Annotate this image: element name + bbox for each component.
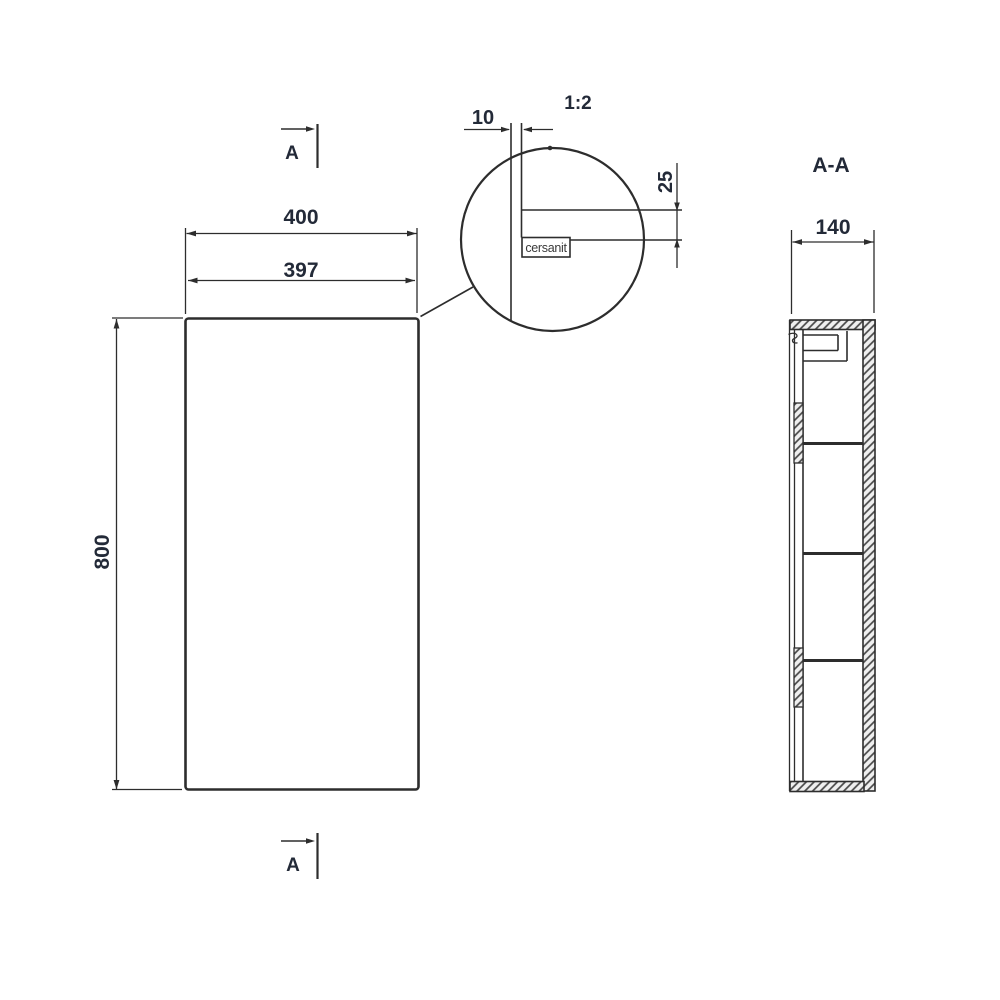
section-view-label: A-A (812, 154, 849, 177)
dim-397-text: 397 (283, 259, 318, 282)
width-dimensions: 400 397 (186, 206, 418, 314)
drawing-canvas: A A 400 397 80 (0, 0, 1000, 1000)
depth-dimension: 140 (792, 216, 875, 314)
dim-10-text: 10 (472, 107, 494, 129)
section-marker-bottom: A (281, 833, 318, 879)
detail-leader-line (421, 287, 474, 317)
front-door-section (863, 320, 875, 791)
section-arrowhead-bottom (306, 838, 315, 843)
dim-800-arrow-bottom (114, 780, 120, 790)
detail-scale-label: 1:2 (564, 93, 591, 114)
dim-400-arrow-right (407, 231, 417, 237)
bottom-panel-section (790, 782, 864, 792)
dim-397-arrow-right (406, 278, 416, 284)
front-view: A A 400 397 80 (91, 124, 473, 879)
section-marker-top-label: A (285, 143, 299, 164)
hanging-bracket (789, 331, 848, 361)
section-arrowhead-top (306, 126, 315, 131)
brand-logo: cersanit (522, 238, 570, 258)
wall-rail-section-upper (794, 403, 803, 463)
dim-10-arrow-left (501, 127, 510, 132)
section-view: A-A 140 (789, 154, 876, 792)
section-marker-top: A (281, 124, 318, 168)
dim-800-text: 800 (91, 534, 114, 569)
dim-140-arrow-right (864, 239, 874, 245)
dim-800-arrow-top (114, 319, 120, 329)
dim-10-arrow-right (523, 127, 532, 132)
detail-offset-dimension: 25 (655, 163, 680, 268)
cabinet-front-outline (186, 319, 419, 790)
detail-gap-dimension: 10 (464, 107, 553, 132)
dim-400-arrow-left (187, 231, 197, 237)
logo-text: cersanit (525, 241, 567, 255)
technical-drawing: A A 400 397 80 (0, 0, 1000, 1000)
dim-400-text: 400 (283, 206, 318, 229)
wall-rail-section-lower (794, 648, 803, 707)
section-marker-bottom-label: A (286, 855, 300, 876)
dim-25-text: 25 (655, 171, 677, 193)
detail-view: 1:2 10 25 cersanit (461, 93, 682, 331)
dim-140-text: 140 (815, 216, 850, 239)
height-dimension: 800 (91, 318, 183, 790)
dim-140-arrow-left (793, 239, 803, 245)
dim-397-arrow-left (188, 278, 198, 284)
detail-circle-dot (548, 146, 553, 151)
